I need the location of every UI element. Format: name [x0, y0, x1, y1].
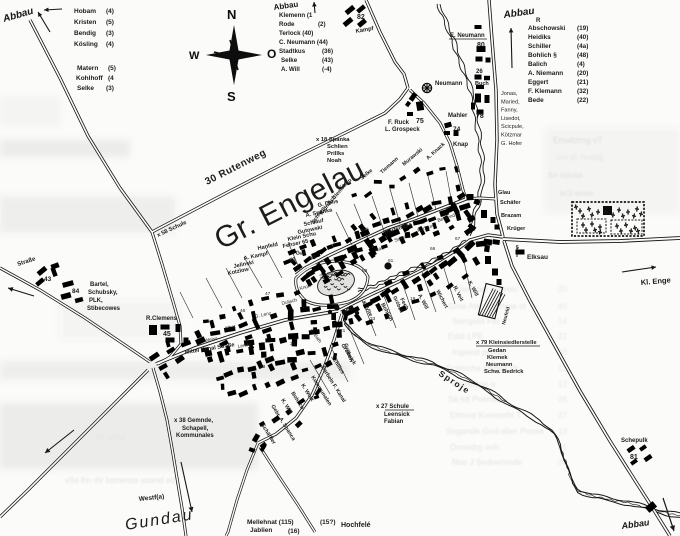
svg-text:(20): (20)	[577, 70, 588, 77]
svg-text:66: 66	[430, 246, 436, 252]
svg-text:Sngande Gnd aber Pnsse: Sngande Gnd aber Pnsse	[446, 426, 544, 436]
svg-text:Schepulk: Schepulk	[621, 438, 648, 444]
svg-text:(-4): (-4)	[322, 66, 332, 73]
svg-text:C. Neumann (44): C. Neumann (44)	[279, 39, 328, 46]
svg-text:(4a): (4a)	[577, 43, 588, 50]
svg-text:(4): (4)	[577, 61, 585, 68]
svg-text:G. Hofer: G. Hofer	[501, 141, 522, 147]
svg-text:46: 46	[240, 308, 246, 314]
svg-text:(43): (43)	[322, 57, 333, 64]
svg-text:Stibecowes: Stibecowes	[87, 306, 121, 312]
svg-text:Schapell,: Schapell,	[182, 426, 209, 432]
svg-text:40: 40	[558, 302, 567, 311]
svg-text:(16): (16)	[288, 528, 300, 535]
svg-text:Bartel,: Bartel,	[90, 282, 109, 288]
svg-text:Klemenn (1: Klemenn (1	[279, 12, 313, 19]
svg-text:19: 19	[410, 296, 416, 302]
svg-text:23: 23	[370, 316, 376, 322]
svg-text:80: 80	[477, 42, 485, 49]
svg-text:75: 75	[416, 118, 424, 125]
svg-text:vrn tE hrslsg: vrn tE hrslsg	[556, 152, 604, 162]
svg-text:(32): (32)	[577, 88, 588, 95]
svg-text:Stadtkus: Stadtkus	[279, 48, 306, 55]
svg-text:Elksau: Elksau	[527, 254, 548, 261]
svg-text:27: 27	[558, 411, 567, 420]
svg-text:F. Ruck: F. Ruck	[388, 120, 410, 126]
svg-text:Schubsky,: Schubsky,	[88, 290, 118, 296]
svg-text:(22): (22)	[577, 97, 588, 104]
svg-text:Nse J Sednemnde: Nse J Sednemnde	[452, 457, 522, 467]
svg-text:Selke: Selke	[77, 85, 94, 92]
svg-text:R.Clemens: R.Clemens	[146, 316, 178, 322]
svg-text:x 38 Gemnde,: x 38 Gemnde,	[174, 418, 213, 424]
svg-text:Tn wvnd: Tn wvnd	[95, 433, 125, 442]
svg-text:Buch: Buch	[475, 81, 489, 87]
svg-text:5: 5	[516, 245, 519, 251]
svg-text:(21): (21)	[577, 79, 588, 86]
svg-text:vSe lhn dV bsmense sownd ed: vSe lhn dV bsmense sownd ed	[65, 476, 175, 485]
svg-text:45: 45	[163, 331, 171, 338]
svg-text:Lisedot,: Lisedot,	[501, 116, 521, 122]
svg-text:20: 20	[558, 285, 567, 294]
svg-text:67: 67	[455, 236, 461, 242]
svg-text:Kötzmar: Kötzmar	[501, 133, 522, 139]
svg-text:N: N	[227, 7, 236, 22]
svg-text:Noah: Noah	[327, 158, 342, 164]
svg-text:bGl wnse: bGl wnse	[560, 189, 594, 198]
svg-text:Glau: Glau	[498, 190, 511, 196]
svg-text:Terlock (40): Terlock (40)	[279, 30, 313, 37]
svg-text:Scicpule,: Scicpule,	[501, 124, 524, 130]
svg-text:36: 36	[558, 395, 567, 404]
svg-text:(4: (4	[108, 75, 114, 82]
svg-text:Bendig: Bendig	[74, 30, 96, 37]
svg-text:Bohlich §: Bohlich §	[528, 52, 557, 59]
svg-text:(4): (4)	[106, 8, 114, 15]
svg-text:Jonas,: Jonas,	[501, 91, 518, 97]
svg-text:R: R	[536, 18, 541, 24]
svg-text:13: 13	[558, 427, 567, 436]
svg-text:Fabian: Fabian	[384, 419, 404, 425]
svg-text:12: 12	[558, 380, 567, 389]
svg-text:53: 53	[362, 268, 368, 274]
svg-text:A. Niemann: A. Niemann	[528, 70, 563, 77]
svg-text:x 18 Spanka: x 18 Spanka	[316, 137, 350, 143]
svg-text:Kommunales: Kommunales	[176, 433, 214, 439]
svg-text:Schäfer: Schäfer	[500, 200, 521, 206]
svg-text:Brazam: Brazam	[501, 213, 521, 219]
svg-text:Se ndwse: Se ndwse	[548, 171, 584, 180]
svg-text:22: 22	[558, 332, 567, 341]
svg-text:Kristen: Kristen	[74, 19, 96, 26]
svg-text:53: 53	[309, 255, 316, 262]
svg-text:Matern: Matern	[77, 65, 98, 72]
svg-text:O: O	[267, 47, 276, 61]
svg-text:PLK,: PLK,	[89, 298, 103, 304]
svg-text:61: 61	[388, 258, 394, 264]
svg-text:F. Klemann: F. Klemann	[528, 88, 562, 95]
svg-text:(3): (3)	[106, 30, 114, 37]
svg-text:82: 82	[357, 14, 365, 21]
svg-text:Gedan: Gedan	[488, 348, 506, 354]
svg-text:E. Neumann: E. Neumann	[450, 33, 485, 39]
svg-text:Mellehnat (115): Mellehnat (115)	[247, 519, 294, 526]
svg-text:Bede: Bede	[528, 97, 544, 104]
svg-text:(3): (3)	[106, 85, 114, 92]
svg-text:W: W	[189, 50, 200, 62]
svg-text:Ovnedrg enh: Ovnedrg enh	[450, 442, 499, 452]
svg-text:Schw. Bedrick: Schw. Bedrick	[484, 369, 524, 375]
svg-text:x 79 Kleinsiedlerstelle: x 79 Kleinsiedlerstelle	[476, 340, 537, 346]
svg-text:(15?): (15?)	[320, 519, 336, 526]
svg-text:(2): (2)	[318, 21, 326, 28]
svg-text:Balich: Balich	[528, 61, 547, 68]
svg-text:L. Grospeck: L. Grospeck	[385, 127, 420, 133]
svg-text:A. Will: A. Will	[281, 66, 300, 73]
svg-text:Hochfelé: Hochfelé	[341, 522, 371, 529]
svg-text:84: 84	[72, 288, 80, 295]
svg-text:S: S	[227, 89, 236, 104]
svg-text:Kohlhoff: Kohlhoff	[76, 75, 104, 82]
svg-text:Maried,: Maried,	[501, 99, 520, 105]
svg-text:(48): (48)	[577, 52, 588, 59]
svg-text:74: 74	[453, 126, 461, 133]
svg-text:21: 21	[340, 328, 346, 334]
svg-text:43: 43	[44, 276, 52, 283]
svg-text:31: 31	[290, 341, 296, 347]
svg-text:33: 33	[260, 364, 266, 370]
svg-text:Schlien: Schlien	[327, 144, 348, 150]
svg-text:Hobam: Hobam	[74, 8, 96, 15]
svg-text:81: 81	[630, 454, 638, 461]
svg-text:Heidiks: Heidiks	[528, 34, 551, 41]
svg-text:Prillks: Prillks	[327, 151, 344, 157]
svg-text:(40): (40)	[577, 34, 588, 41]
svg-text:Klenvner verzeic: Klenvner verzeic	[455, 284, 519, 294]
svg-text:Leensick: Leensick	[384, 412, 410, 418]
svg-text:Rode: Rode	[279, 21, 295, 28]
svg-text:(5): (5)	[106, 19, 114, 26]
svg-text:Schiller: Schiller	[528, 43, 552, 50]
svg-text:Krüger: Krüger	[507, 226, 526, 232]
svg-text:Jablien: Jablien	[250, 527, 272, 534]
svg-text:14: 14	[558, 317, 567, 326]
svg-text:47: 47	[265, 291, 271, 297]
svg-text:Kösling: Kösling	[74, 41, 98, 48]
svg-text:Eggert: Eggert	[528, 79, 549, 86]
svg-text:(4): (4)	[106, 41, 114, 48]
svg-text:Knap: Knap	[453, 142, 468, 148]
svg-text:26: 26	[476, 69, 483, 75]
svg-text:78: 78	[476, 113, 484, 120]
svg-text:Neumann: Neumann	[435, 81, 463, 87]
svg-text:52: 52	[289, 257, 296, 264]
svg-text:Abschowski: Abschowski	[528, 25, 566, 32]
svg-text:Fanny,: Fanny,	[501, 108, 518, 114]
svg-text:Selke: Selke	[281, 57, 298, 64]
svg-text:(5): (5)	[108, 65, 116, 72]
svg-text:(19): (19)	[577, 25, 588, 32]
svg-text:Neumann: Neumann	[486, 362, 513, 368]
svg-text:x 27 Schule: x 27 Schule	[376, 404, 410, 410]
svg-text:Mahler: Mahler	[448, 113, 468, 119]
svg-text:(36): (36)	[322, 48, 333, 55]
svg-text:Elmvnt Kvemsrhl T: Elmvnt Kvemsrhl T	[450, 410, 521, 420]
svg-text:Emwtzrng vT: Emwtzrng vT	[553, 135, 603, 145]
svg-text:Serrgebt Pld: Serrgebt Pld	[452, 316, 500, 326]
svg-text:Klemek: Klemek	[487, 355, 508, 361]
svg-text:58: 58	[300, 251, 306, 257]
